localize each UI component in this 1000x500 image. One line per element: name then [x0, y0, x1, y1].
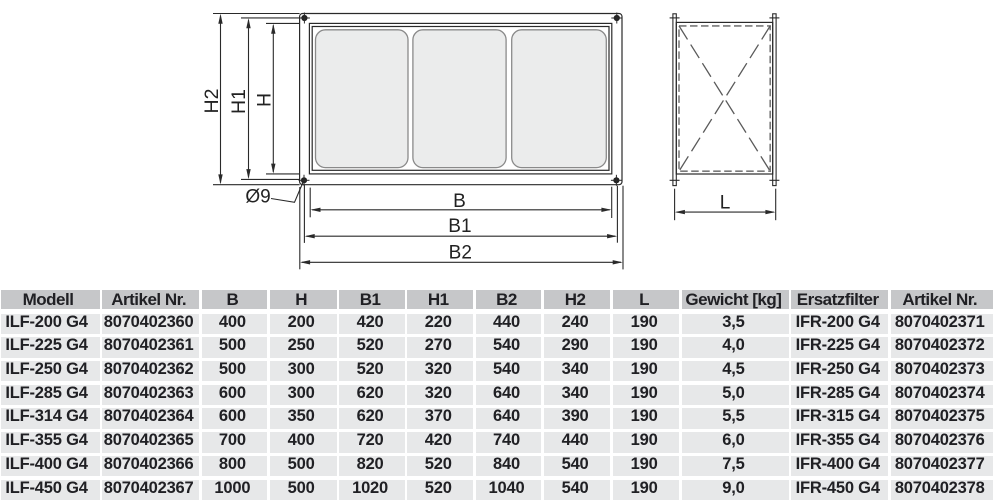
- svg-text:B1: B1: [448, 216, 471, 237]
- svg-text:L: L: [720, 192, 731, 213]
- svg-text:B2: B2: [449, 242, 472, 263]
- svg-text:Ø9: Ø9: [245, 187, 270, 208]
- svg-text:H2: H2: [201, 89, 223, 114]
- svg-text:H1: H1: [228, 89, 250, 114]
- svg-text:H: H: [254, 93, 276, 107]
- svg-text:B: B: [453, 191, 466, 212]
